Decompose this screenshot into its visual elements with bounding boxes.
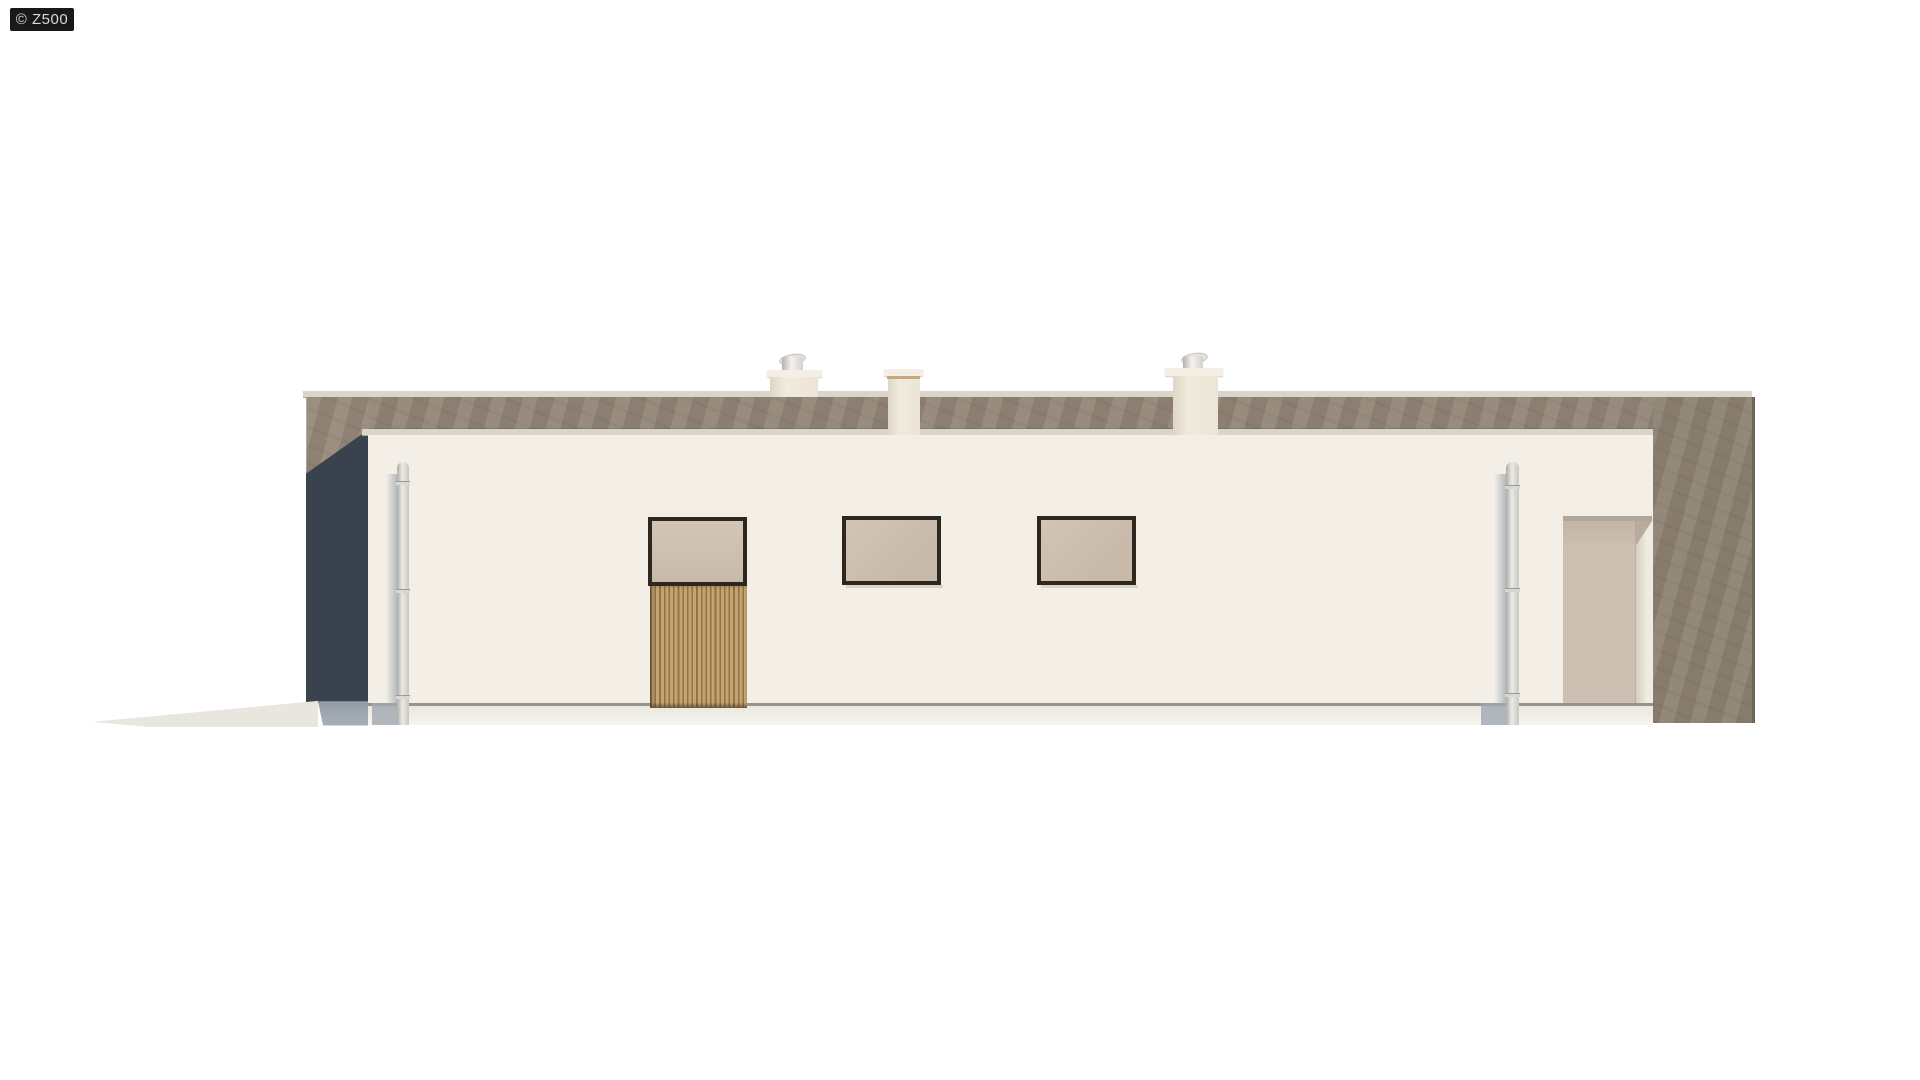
side-door-panel	[1563, 521, 1636, 703]
chimney-body	[888, 379, 920, 436]
downpipe-left-base-shadow	[372, 703, 398, 725]
vent-stack-2-slab	[1165, 368, 1223, 376]
downpipe-right-joint	[1505, 588, 1520, 592]
downpipe-right-base-shadow	[1481, 703, 1507, 725]
chimney-slab	[884, 369, 923, 376]
vent-stack-1-body	[770, 377, 818, 397]
downpipe-right-joint	[1505, 693, 1520, 697]
facade-wall	[368, 435, 1653, 725]
vent-stack-2-body	[1173, 376, 1218, 436]
watermark-badge: © Z500	[10, 8, 74, 31]
vent-stack-1-slab	[767, 370, 822, 377]
entry-door-wood-slats	[650, 586, 747, 708]
downpipe-left	[397, 462, 409, 725]
window-1-shadow	[846, 585, 943, 588]
rear-wall-right-section	[1653, 397, 1755, 723]
downpipe-right-joint	[1505, 485, 1520, 489]
window-2-shadow	[1041, 585, 1138, 588]
facade-base-strip	[368, 706, 1653, 725]
side-door-jamb	[1635, 521, 1652, 703]
downpipe-left-joint	[396, 695, 410, 699]
rear-wall-parapet-band	[306, 397, 1749, 430]
window-1-glass	[846, 520, 937, 581]
rear-wall-shadow	[306, 430, 368, 703]
ground-shadow-wedge	[92, 697, 318, 727]
window-2-glass	[1041, 520, 1132, 581]
downpipe-left-joint	[396, 589, 410, 593]
ground-shadow-corner	[318, 697, 368, 727]
watermark-text: © Z500	[16, 11, 68, 28]
downpipe-left-joint	[396, 481, 410, 485]
elevation-scene: © Z500	[0, 0, 1920, 1080]
downpipe-right	[1506, 462, 1519, 725]
entry-door-window-glass	[652, 521, 743, 582]
